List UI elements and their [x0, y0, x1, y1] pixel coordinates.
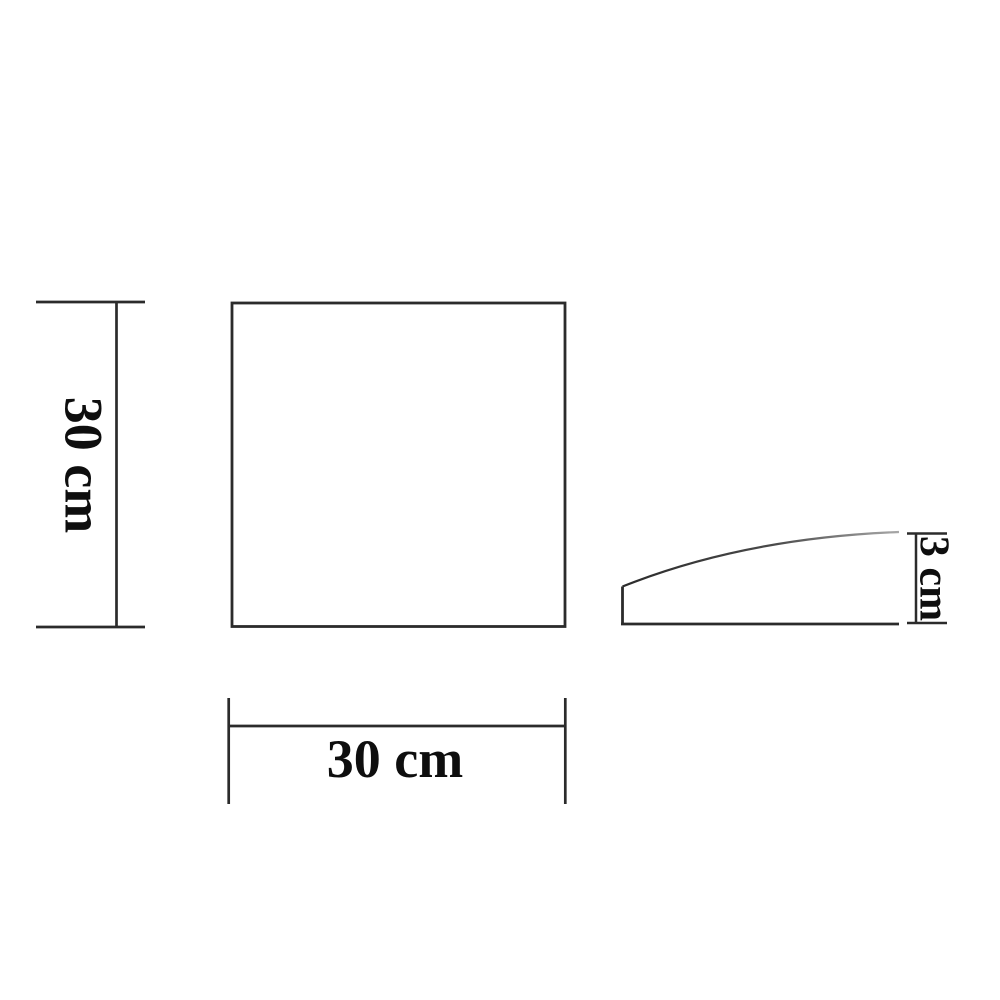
- svg-text:30 cm: 30 cm: [54, 397, 114, 533]
- svg-text:3 cm: 3 cm: [911, 536, 957, 621]
- svg-text:30 cm: 30 cm: [327, 729, 463, 789]
